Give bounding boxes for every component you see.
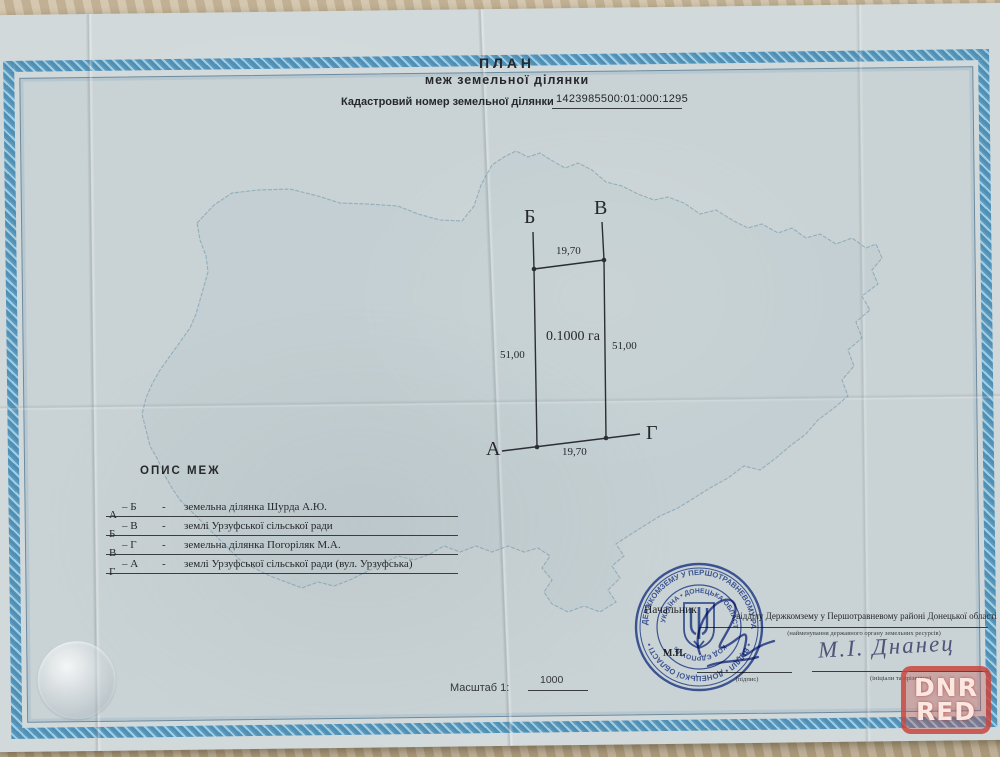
cadastral-label: Кадастровий номер земельної ділянки <box>341 96 554 108</box>
boundaries-table: А – Б - земельна ділянка Шурда А.Ю. Б – … <box>106 498 458 574</box>
signature-scribble <box>688 590 792 682</box>
corner-label-g: Г <box>646 422 658 445</box>
doc-title: ПЛАН <box>407 55 607 71</box>
row-to: – Г <box>122 539 137 551</box>
corner-label-a: А <box>486 438 500 461</box>
row-dash: - <box>162 520 166 532</box>
boundaries-heading: ОПИС МЕЖ <box>140 465 221 477</box>
dimension-left: 51,00 <box>500 349 525 361</box>
cadastral-number: 1423985500:01:000:1295 <box>556 93 688 105</box>
row-dash: - <box>162 501 166 513</box>
scale-label: Масштаб 1: <box>450 682 509 694</box>
dimension-right: 51,00 <box>612 340 637 352</box>
row-dash: - <box>162 539 166 551</box>
boundary-row: Б – В - землі Урзуфської сільської ради <box>106 517 458 536</box>
dimension-top: 19,70 <box>556 245 581 257</box>
boundary-row: В – Г - земельна ділянка Погоріляк М.А. <box>106 536 458 555</box>
scale-value: 1000 <box>540 674 563 686</box>
scale-underline <box>528 690 588 691</box>
dnr-red-watermark: DNR RED <box>901 666 991 734</box>
document-content: ПЛАН меж земельної ділянки Кадастровий н… <box>0 0 1000 757</box>
doc-subtitle: меж земельної ділянки <box>377 73 637 87</box>
corner-label-b: Б <box>524 206 535 229</box>
dnr-watermark-line2: RED <box>916 700 976 724</box>
row-dash: - <box>162 558 166 570</box>
row-desc: землі Урзуфської сільської ради <box>184 520 333 532</box>
boundary-row: Г – А - землі Урзуфської сільської ради … <box>106 555 458 574</box>
dimension-bottom: 19,70 <box>562 446 587 458</box>
area-label: 0.1000 га <box>546 329 600 345</box>
row-desc: земельна ділянка Шурда А.Ю. <box>184 501 327 513</box>
row-desc: землі Урзуфської сільської ради (вул. Ур… <box>184 558 412 570</box>
row-from: Г <box>109 566 115 578</box>
row-to: – В <box>122 520 138 532</box>
boundary-row: А – Б - земельна ділянка Шурда А.Ю. <box>106 498 458 517</box>
row-desc: земельна ділянка Погоріляк М.А. <box>184 539 341 551</box>
cadastral-underline <box>552 108 682 109</box>
corner-label-v: В <box>594 197 607 220</box>
row-to: – Б <box>122 501 137 513</box>
row-to: – А <box>122 558 138 570</box>
corner-dots <box>532 258 609 450</box>
